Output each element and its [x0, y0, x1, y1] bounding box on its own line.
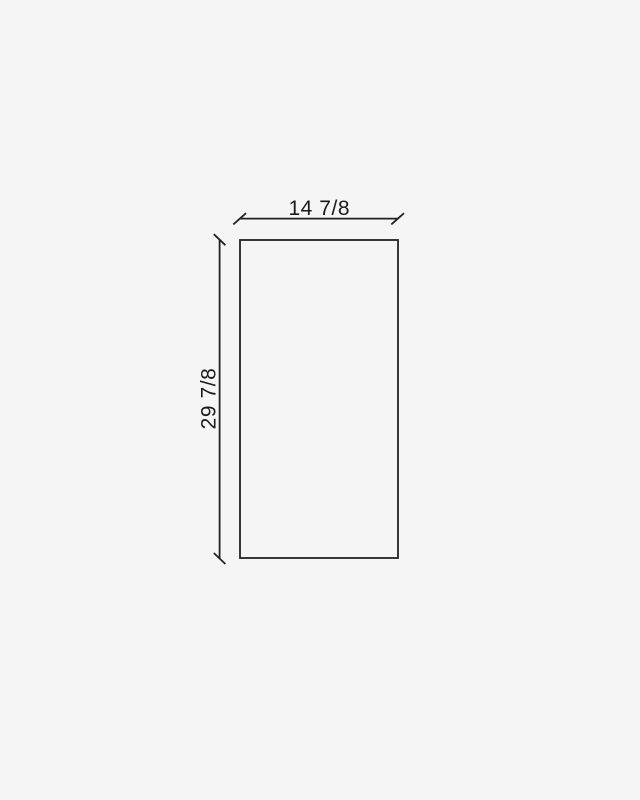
svg-text:14 7/8: 14 7/8: [288, 197, 350, 220]
svg-text:29 7/8: 29 7/8: [198, 368, 221, 430]
